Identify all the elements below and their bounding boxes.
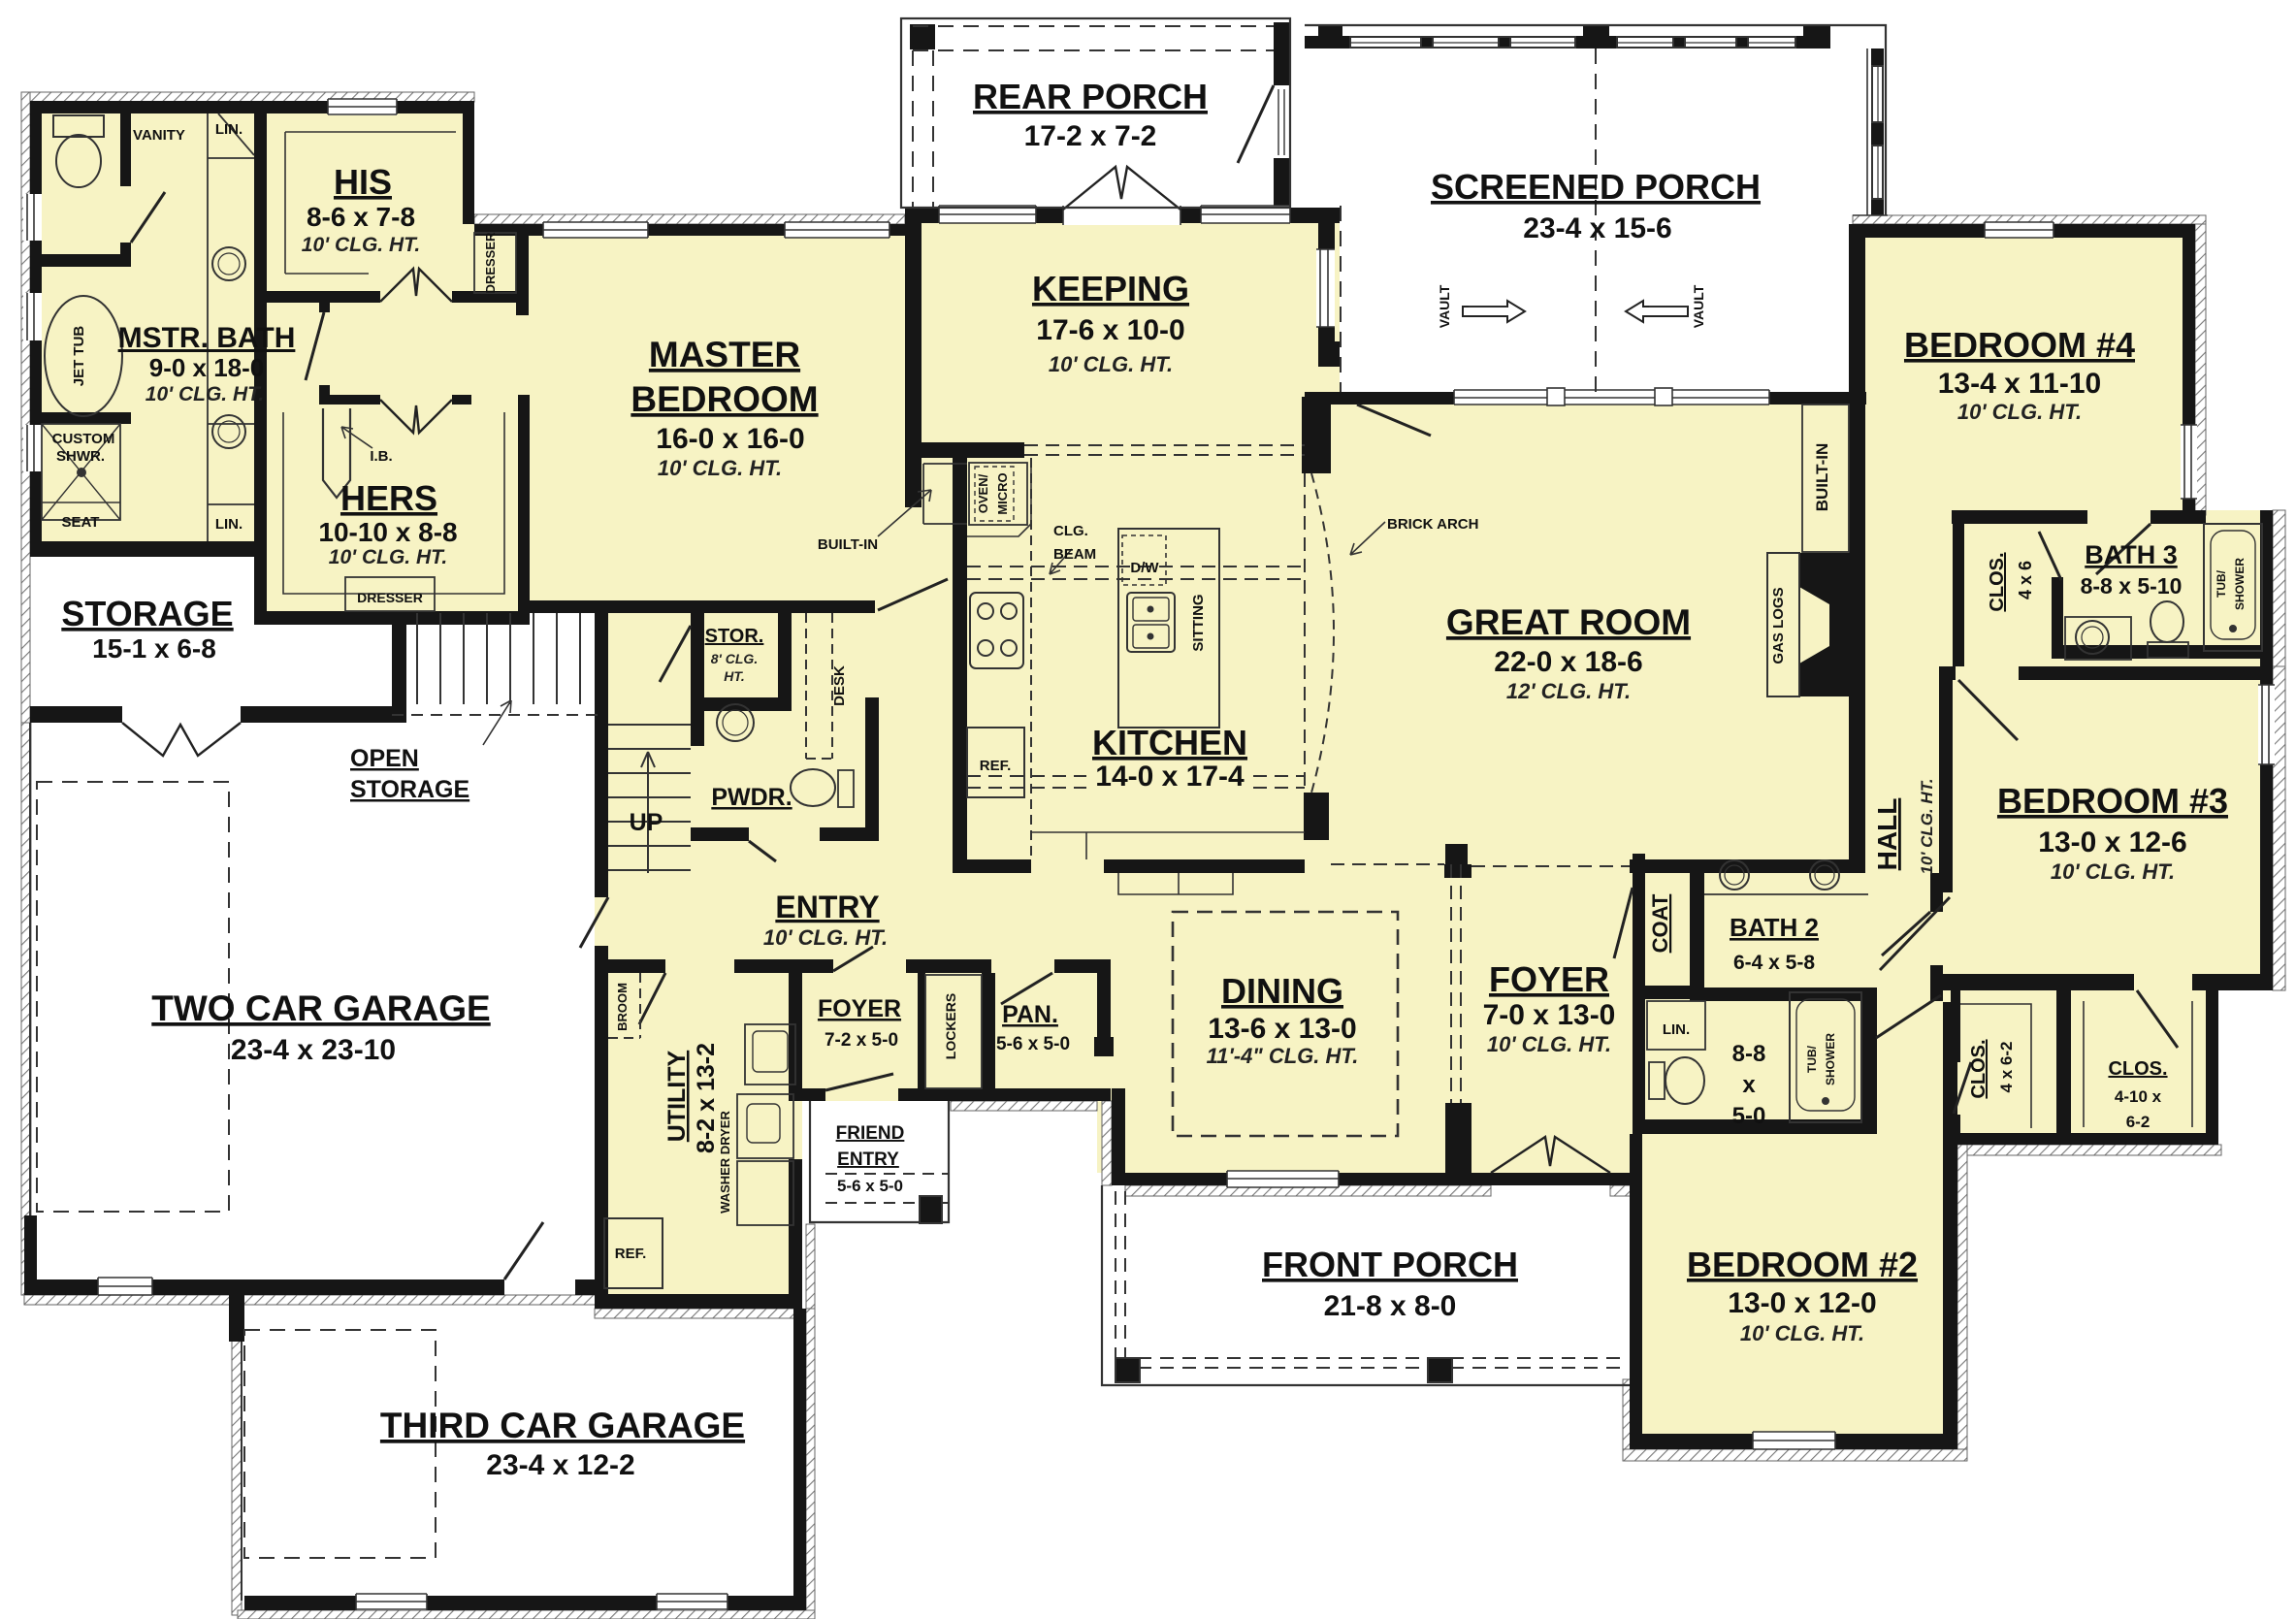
svg-text:13-6 x 13-0: 13-6 x 13-0 — [1208, 1013, 1356, 1045]
svg-text:SITTING: SITTING — [1190, 594, 1207, 651]
svg-text:10' CLG. HT.: 10' CLG. HT. — [1740, 1321, 1864, 1345]
svg-text:4-10 x: 4-10 x — [2115, 1087, 2162, 1106]
svg-text:6-4 x 5-8: 6-4 x 5-8 — [1733, 952, 1815, 974]
svg-text:FRONT PORCH: FRONT PORCH — [1262, 1245, 1518, 1284]
svg-text:13-0 x 12-0: 13-0 x 12-0 — [1728, 1287, 1876, 1319]
svg-text:CLG.: CLG. — [1053, 523, 1088, 539]
svg-text:8' CLG.: 8' CLG. — [711, 651, 758, 666]
svg-text:HERS: HERS — [340, 478, 437, 518]
svg-text:4 x 6: 4 x 6 — [2016, 561, 2035, 599]
svg-text:HALL: HALL — [1872, 798, 1902, 871]
svg-text:7-2 x 5-0: 7-2 x 5-0 — [825, 1030, 898, 1051]
svg-text:DESK: DESK — [831, 665, 848, 706]
svg-text:10-10 x 8-8: 10-10 x 8-8 — [318, 517, 457, 547]
svg-text:22-0 x 18-6: 22-0 x 18-6 — [1494, 646, 1642, 678]
svg-text:I.B.: I.B. — [370, 448, 392, 465]
svg-text:LIN.: LIN. — [1663, 1021, 1690, 1038]
svg-text:CLOS.: CLOS. — [1987, 552, 2008, 611]
svg-text:SHWR.: SHWR. — [56, 448, 105, 465]
svg-text:6-2: 6-2 — [2126, 1113, 2150, 1131]
svg-text:HIS: HIS — [334, 162, 392, 202]
svg-text:GAS LOGS: GAS LOGS — [1770, 587, 1787, 664]
svg-text:FOYER: FOYER — [1489, 959, 1609, 999]
svg-text:x: x — [1742, 1072, 1756, 1098]
svg-text:TUB/: TUB/ — [2215, 569, 2228, 598]
svg-text:5-6 x 5-0: 5-6 x 5-0 — [837, 1177, 903, 1195]
svg-text:17-2 x 7-2: 17-2 x 7-2 — [1024, 120, 1157, 152]
svg-text:THIRD CAR GARAGE: THIRD CAR GARAGE — [380, 1406, 745, 1445]
svg-text:VAULT: VAULT — [1437, 284, 1452, 328]
svg-text:21-8 x 8-0: 21-8 x 8-0 — [1324, 1290, 1457, 1322]
svg-text:14-0 x 17-4: 14-0 x 17-4 — [1095, 761, 1245, 793]
svg-text:KITCHEN: KITCHEN — [1092, 723, 1247, 762]
svg-text:BUILT-IN: BUILT-IN — [1813, 443, 1831, 512]
svg-text:12' CLG. HT.: 12' CLG. HT. — [1506, 679, 1631, 703]
svg-text:10' CLG. HT.: 10' CLG. HT. — [2051, 859, 2175, 884]
svg-text:DINING: DINING — [1221, 971, 1343, 1011]
svg-text:8-6 x 7-8: 8-6 x 7-8 — [307, 202, 415, 232]
svg-text:9-0 x 18-0: 9-0 x 18-0 — [149, 353, 265, 382]
svg-text:BEDROOM: BEDROOM — [631, 379, 818, 419]
svg-text:ENTRY: ENTRY — [837, 1149, 899, 1170]
svg-text:BEAM: BEAM — [1053, 546, 1096, 563]
svg-text:10' CLG. HT.: 10' CLG. HT. — [329, 546, 447, 568]
svg-text:10' CLG. HT.: 10' CLG. HT. — [763, 925, 888, 950]
svg-text:DRESSER: DRESSER — [483, 232, 498, 293]
svg-text:BEDROOM #4: BEDROOM #4 — [1904, 325, 2135, 365]
svg-text:BRICK ARCH: BRICK ARCH — [1387, 516, 1478, 533]
svg-text:LIN.: LIN. — [215, 121, 243, 138]
svg-text:10' CLG. HT.: 10' CLG. HT. — [1049, 352, 1173, 376]
svg-text:CLOS.: CLOS. — [2108, 1058, 2167, 1080]
svg-text:BEDROOM #2: BEDROOM #2 — [1687, 1245, 1918, 1284]
svg-text:JET TUB: JET TUB — [71, 326, 87, 387]
svg-text:VAULT: VAULT — [1691, 284, 1706, 328]
svg-text:OVEN/: OVEN/ — [976, 473, 990, 513]
svg-text:SEAT: SEAT — [62, 514, 100, 531]
svg-text:DRESSER: DRESSER — [357, 590, 423, 605]
svg-text:REF.: REF. — [980, 758, 1012, 774]
svg-text:TUB/: TUB/ — [1805, 1045, 1819, 1073]
svg-text:BROOM: BROOM — [615, 983, 630, 1031]
svg-text:VANITY: VANITY — [133, 127, 185, 144]
svg-text:7-0 x 13-0: 7-0 x 13-0 — [1483, 999, 1616, 1031]
svg-text:BUILT-IN: BUILT-IN — [818, 536, 878, 553]
svg-text:5-0: 5-0 — [1732, 1103, 1766, 1129]
svg-text:ENTRY: ENTRY — [775, 890, 879, 924]
svg-text:REF.: REF. — [615, 1246, 647, 1262]
svg-text:PWDR.: PWDR. — [711, 784, 792, 811]
svg-text:SHOWER: SHOWER — [1824, 1033, 1837, 1085]
svg-text:COAT: COAT — [1648, 893, 1672, 953]
svg-text:8-2 x 13-2: 8-2 x 13-2 — [693, 1043, 720, 1153]
svg-text:23-4 x 15-6: 23-4 x 15-6 — [1523, 212, 1671, 244]
svg-text:KEEPING: KEEPING — [1032, 269, 1189, 308]
svg-text:HT.: HT. — [724, 668, 745, 684]
svg-text:MICRO: MICRO — [995, 472, 1010, 514]
svg-text:MASTER: MASTER — [649, 335, 800, 374]
svg-text:MSTR. BATH: MSTR. BATH — [118, 322, 296, 354]
svg-text:STOR.: STOR. — [705, 626, 764, 647]
svg-text:CLOS.: CLOS. — [1968, 1039, 1989, 1098]
svg-text:17-6 x 10-0: 17-6 x 10-0 — [1036, 314, 1184, 346]
svg-text:STORAGE: STORAGE — [61, 594, 233, 633]
svg-text:CUSTOM: CUSTOM — [52, 431, 115, 447]
svg-text:REAR PORCH: REAR PORCH — [973, 77, 1208, 116]
svg-text:UTILITY: UTILITY — [663, 1050, 691, 1142]
svg-text:10' CLG. HT.: 10' CLG. HT. — [658, 456, 782, 480]
svg-text:WASHER DRYER: WASHER DRYER — [718, 1111, 732, 1214]
svg-text:SHOWER: SHOWER — [2233, 558, 2247, 610]
svg-text:LIN.: LIN. — [215, 516, 243, 533]
svg-text:BATH 3: BATH 3 — [2085, 540, 2178, 569]
svg-text:16-0 x 16-0: 16-0 x 16-0 — [656, 423, 804, 455]
svg-text:11'-4" CLG. HT.: 11'-4" CLG. HT. — [1207, 1044, 1359, 1068]
svg-text:10' CLG. HT.: 10' CLG. HT. — [1918, 778, 1936, 874]
svg-text:23-4 x 23-10: 23-4 x 23-10 — [231, 1034, 396, 1066]
svg-text:10' CLG. HT.: 10' CLG. HT. — [302, 234, 420, 256]
svg-text:5-6 x 5-0: 5-6 x 5-0 — [996, 1034, 1070, 1054]
svg-text:10' CLG. HT.: 10' CLG. HT. — [1487, 1032, 1611, 1056]
svg-text:15-1 x 6-8: 15-1 x 6-8 — [92, 633, 216, 664]
svg-text:D/W: D/W — [1130, 560, 1159, 576]
svg-text:10' CLG. HT.: 10' CLG. HT. — [146, 383, 264, 405]
svg-text:8-8: 8-8 — [1732, 1041, 1766, 1067]
svg-text:LOCKERS: LOCKERS — [943, 993, 958, 1059]
svg-text:8-8 x 5-10: 8-8 x 5-10 — [2081, 573, 2183, 599]
svg-text:UP: UP — [630, 809, 663, 836]
svg-text:STORAGE: STORAGE — [350, 776, 469, 803]
svg-text:BEDROOM #3: BEDROOM #3 — [1997, 781, 2228, 821]
svg-text:SCREENED PORCH: SCREENED PORCH — [1431, 167, 1761, 207]
svg-text:TWO CAR GARAGE: TWO CAR GARAGE — [151, 988, 490, 1028]
svg-text:FRIEND: FRIEND — [836, 1123, 905, 1144]
svg-text:PAN.: PAN. — [1002, 1001, 1058, 1028]
svg-text:13-4 x 11-10: 13-4 x 11-10 — [1938, 368, 2101, 400]
svg-text:GREAT ROOM: GREAT ROOM — [1446, 602, 1691, 642]
svg-text:23-4 x 12-2: 23-4 x 12-2 — [486, 1449, 634, 1481]
svg-text:BATH 2: BATH 2 — [1730, 913, 1819, 942]
svg-text:4 x 6-2: 4 x 6-2 — [1997, 1042, 2016, 1093]
svg-text:10' CLG. HT.: 10' CLG. HT. — [1957, 400, 2082, 424]
svg-text:OPEN: OPEN — [350, 745, 419, 772]
svg-text:FOYER: FOYER — [818, 995, 901, 1022]
svg-text:13-0 x 12-6: 13-0 x 12-6 — [2038, 826, 2186, 858]
